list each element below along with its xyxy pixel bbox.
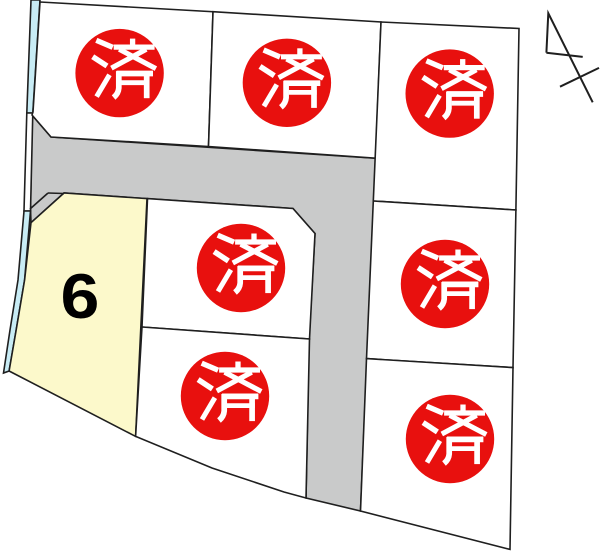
svg-text:6: 6 bbox=[60, 262, 99, 332]
